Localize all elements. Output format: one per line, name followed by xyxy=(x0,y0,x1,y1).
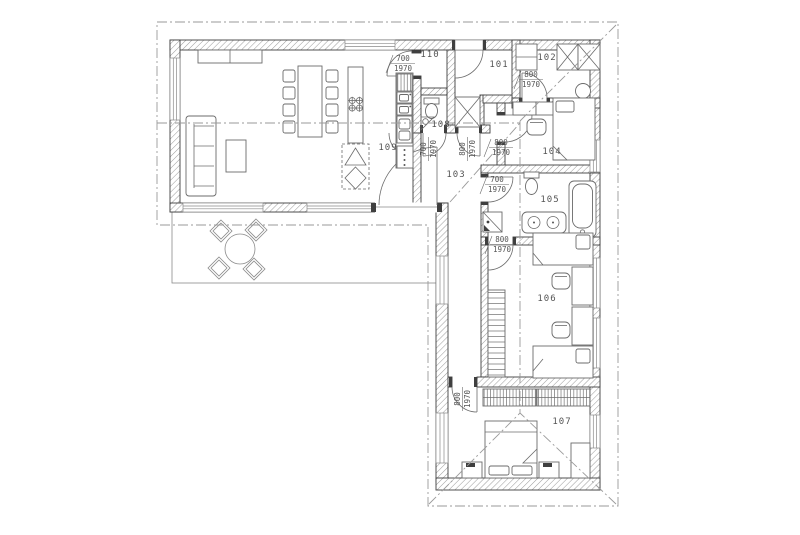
room-label-101: 101 xyxy=(489,60,508,70)
window xyxy=(436,256,448,304)
window xyxy=(183,203,263,212)
bathtub xyxy=(569,181,596,237)
coffee-table xyxy=(226,140,246,172)
door-width: 800 xyxy=(494,138,508,147)
kids-room-106-furniture xyxy=(488,233,593,378)
room-label-108: 108 xyxy=(431,120,450,130)
kitchen-island xyxy=(348,67,363,143)
desk xyxy=(572,267,593,305)
kitchen-sink xyxy=(397,116,412,143)
door-label-room106: 800 1970 xyxy=(485,235,514,254)
sliding-wardrobe xyxy=(483,389,590,406)
vanity-double-sink xyxy=(522,212,566,233)
door-height: 1970 xyxy=(522,80,541,89)
room-label-109: 109 xyxy=(378,143,397,153)
door-height: 1970 xyxy=(394,64,413,73)
tall-cabinet xyxy=(571,443,590,478)
nightstand xyxy=(462,462,482,478)
window xyxy=(436,413,448,463)
door-width: 700 xyxy=(490,175,504,184)
room-label-103: 103 xyxy=(446,170,465,180)
door-height: 1970 xyxy=(492,148,511,157)
room-label-105: 105 xyxy=(540,195,559,205)
sofa xyxy=(186,116,216,196)
door-label-room107: 800 1970 xyxy=(453,387,472,411)
toilet xyxy=(424,98,439,119)
door-label-hall: 800 1970 xyxy=(458,137,477,161)
fridge xyxy=(397,74,412,91)
shower xyxy=(483,212,502,232)
window xyxy=(345,40,395,50)
room-label-102: 102 xyxy=(537,53,556,63)
door-height: 1970 xyxy=(468,139,477,158)
desk xyxy=(513,102,536,115)
floor-plan-page: 700 1970 800 1970 700 1970 800 1970 800 … xyxy=(0,0,800,535)
door-width: 800 xyxy=(495,235,509,244)
floor-plan-canvas: 700 1970 800 1970 700 1970 800 1970 800 … xyxy=(0,0,800,535)
patio-table xyxy=(225,234,255,264)
door-label-bath105: 700 1970 xyxy=(480,175,509,194)
kitchen-counter xyxy=(396,73,413,168)
chair xyxy=(552,322,570,338)
patio xyxy=(172,212,443,283)
window xyxy=(170,58,180,120)
oven xyxy=(397,104,412,115)
wardrobe xyxy=(578,44,600,70)
nightstand xyxy=(539,462,559,478)
door-width: 700 xyxy=(396,54,410,63)
dining-table xyxy=(298,66,322,137)
window xyxy=(307,203,375,212)
chair xyxy=(552,273,570,289)
drawer-unit xyxy=(397,146,413,168)
patio-door-opening xyxy=(375,203,437,213)
bedroom-107-furniture xyxy=(462,389,590,478)
patio-chairs xyxy=(208,219,267,280)
door-width: 700 xyxy=(419,142,428,156)
laundry-basket xyxy=(576,84,591,99)
bed xyxy=(533,346,593,378)
door-height: 1970 xyxy=(488,185,507,194)
bookshelf xyxy=(488,290,505,377)
door-label-wc: 700 1970 xyxy=(419,137,438,161)
window xyxy=(590,415,600,448)
door-height: 1970 xyxy=(429,139,438,158)
bed xyxy=(533,233,593,265)
door-width: 800 xyxy=(458,142,467,156)
double-bed xyxy=(485,421,537,478)
wardrobe xyxy=(455,97,480,127)
room-label-106: 106 xyxy=(537,294,556,304)
entry-door-opening xyxy=(455,40,483,50)
room-label-107: 107 xyxy=(552,417,571,427)
hall-furniture xyxy=(455,97,480,127)
door-width: 800 xyxy=(524,70,538,79)
toilet xyxy=(524,172,539,195)
desk xyxy=(572,307,593,345)
door-height: 1970 xyxy=(463,389,472,408)
door-height: 1970 xyxy=(493,245,512,254)
ceiling-feature xyxy=(342,144,369,189)
door-width: 800 xyxy=(453,392,462,406)
chair xyxy=(527,119,546,135)
room-label-104: 104 xyxy=(542,147,561,157)
oven xyxy=(397,92,412,103)
room-label-110: 110 xyxy=(420,50,439,60)
door-label-bedroom104: 800 1970 xyxy=(484,138,513,157)
